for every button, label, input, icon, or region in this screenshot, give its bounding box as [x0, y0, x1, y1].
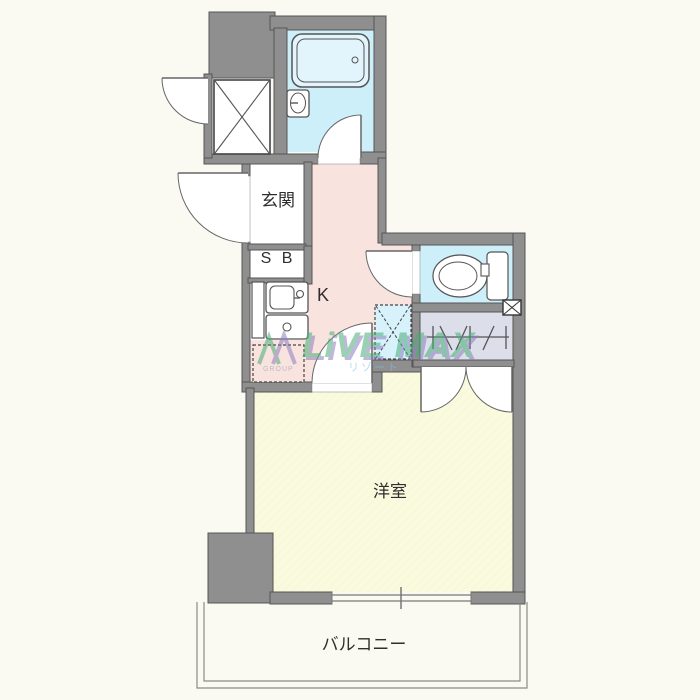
wall-pillar-top-left: [209, 12, 275, 78]
wall-pillar-bottom-left: [208, 533, 273, 603]
washbasin-icon: [287, 90, 309, 117]
meter-box-icon: [214, 80, 270, 154]
wall-room-bottom-right: [471, 592, 525, 604]
wall-closet-bottom: [413, 360, 514, 367]
wall-toilet-top: [382, 233, 525, 245]
wall-closet-left: [412, 312, 420, 367]
kitchen-room-doorway: [312, 383, 372, 392]
wall-room-bottom-left: [270, 592, 332, 604]
wall-entrance-right: [304, 162, 312, 246]
toilet-icon: [433, 252, 508, 300]
floor-plan: 玄関 S B K 洋室 バルコニー GROUP LiVE MAX リゾート: [0, 0, 700, 700]
floor-plan-drawing: [0, 0, 700, 700]
western-room-hatch: [254, 360, 513, 592]
kitchen-counter-icon: [252, 282, 264, 338]
wall-sb-right: [304, 246, 312, 284]
wall-entrance-left-bottom: [242, 242, 250, 388]
pipe-space-icon: [503, 300, 521, 315]
wall-right-outer: [513, 233, 525, 604]
balcony-outline: [197, 602, 527, 688]
washing-machine-space: [375, 305, 411, 359]
wall-hall-right: [378, 158, 386, 243]
wall-toilet-closet-divider: [412, 303, 513, 312]
wall-below-meterbox: [204, 154, 318, 164]
entrance-door-swing: [178, 173, 248, 243]
wall-entrance-sb-divider: [248, 244, 306, 250]
shoebox-floor: [248, 250, 306, 280]
meter-box-door-swing: [162, 78, 208, 124]
refrigerator-space: [253, 345, 304, 382]
entrance-floor: [250, 162, 306, 246]
wall-room-left: [246, 388, 254, 535]
wall-bath-right: [374, 16, 386, 162]
stove-icon: [266, 315, 308, 339]
kitchen-sink-icon: [266, 282, 308, 313]
wall-bath-left: [274, 28, 287, 162]
wall-toilet-left-top: [412, 245, 420, 251]
toilet-doorway: [412, 251, 420, 294]
bathtub-icon: [292, 34, 369, 87]
